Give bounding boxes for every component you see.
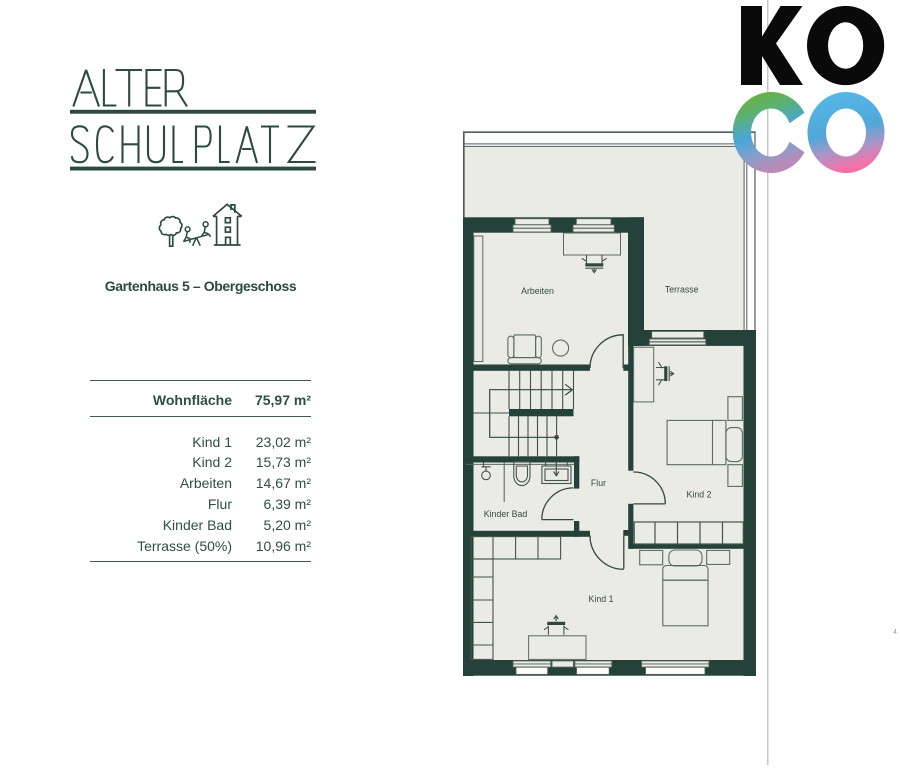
svg-text:Kinder Bad: Kinder Bad: [484, 509, 528, 519]
svg-text:Kind 1: Kind 1: [589, 594, 614, 604]
svg-text:Arbeiten: Arbeiten: [521, 286, 554, 296]
svg-text:4: 4: [893, 629, 897, 636]
svg-text:Flur: Flur: [591, 478, 606, 488]
svg-text:Kind 2: Kind 2: [687, 489, 712, 499]
svg-text:Terrasse: Terrasse: [665, 285, 699, 295]
